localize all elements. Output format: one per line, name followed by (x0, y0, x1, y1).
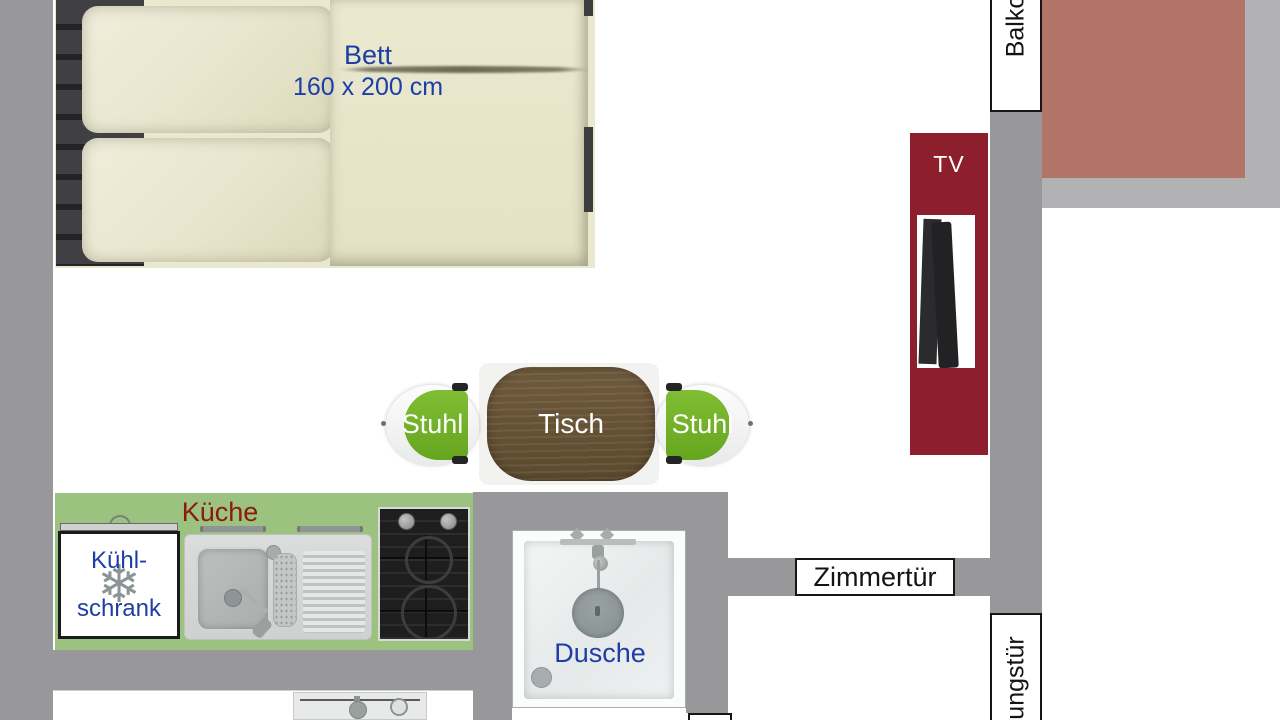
bed-size-label: 160 x 200 cm (248, 73, 488, 102)
cabinet-handle (200, 526, 266, 532)
chair-arm (452, 456, 468, 464)
tv-label: TV (910, 151, 988, 178)
wall-kitchen-bottom (53, 650, 473, 690)
sink-strainer (273, 553, 297, 627)
balcony-door-label: Balko (1002, 0, 1031, 57)
fridge: Kühl- ❄ schrank (58, 531, 180, 639)
table-label: Tisch (487, 367, 655, 481)
washbasin-drain-ring (390, 698, 408, 716)
room-door-label: Zimmertür (797, 560, 953, 594)
shower-head-nozzle (595, 606, 600, 616)
fridge-label-line2: schrank (77, 598, 161, 620)
floor-plan: Bett 160 x 200 cm Stuhl Stuhl Tisch Küch… (0, 0, 1280, 720)
bed-wall-marker (584, 0, 593, 16)
tv-panel: TV (910, 133, 988, 455)
stove-burner (401, 585, 457, 641)
sink-drainboard (303, 551, 365, 633)
balcony-railing-bottom (1042, 178, 1280, 208)
room-door-labelbox: Zimmertür (795, 558, 955, 596)
sink-drain (224, 589, 242, 607)
shower-drain (531, 667, 552, 688)
balcony-railing-right (1245, 0, 1280, 208)
chair-arm (452, 383, 468, 391)
balcony-floor (1042, 0, 1245, 178)
wall-shower-right (686, 530, 728, 713)
dining-table: Tisch (487, 367, 655, 481)
washbasin-knob (349, 701, 367, 719)
shower-label: Dusche (520, 638, 680, 669)
apartment-door-label: ungstür (1002, 636, 1031, 719)
chair-left-label: Stuhl (386, 409, 479, 440)
shower-knob (593, 556, 608, 571)
bed-wall-marker (584, 127, 593, 212)
wall-right-vertical (990, 112, 1042, 613)
fridge-handle (60, 523, 178, 531)
pillow (82, 138, 334, 262)
wall-left (0, 0, 53, 720)
door-swing-dot (748, 421, 753, 426)
tv-screen (917, 215, 975, 368)
bed-label: Bett (248, 40, 488, 71)
wall-shower-top (473, 492, 728, 530)
chair-right-label: Stuhl (656, 409, 749, 440)
stove-knob (398, 513, 415, 530)
bath-door-labelbox (688, 713, 732, 720)
chair-arm (666, 383, 682, 391)
chair-arm (666, 456, 682, 464)
fridge-label-line1: Kühl- (91, 550, 147, 572)
door-swing-dot (381, 421, 386, 426)
stove (378, 507, 470, 641)
stove-knob (440, 513, 457, 530)
cabinet-handle (297, 526, 363, 532)
stove-burner (405, 536, 453, 584)
wall-shower-left (473, 530, 512, 720)
